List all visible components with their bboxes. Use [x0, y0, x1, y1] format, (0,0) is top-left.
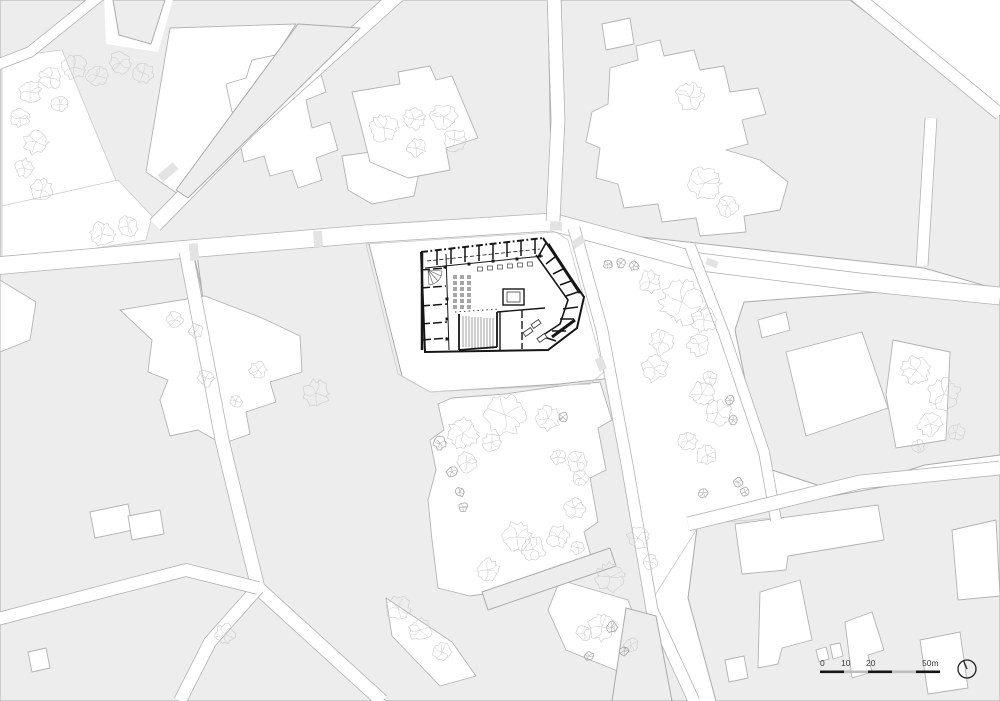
scale-label: 50m [922, 658, 939, 668]
plan-detail [467, 287, 471, 291]
plan-detail [467, 299, 471, 303]
plan-detail [453, 299, 457, 303]
street [553, 0, 558, 221]
courtyard [28, 648, 50, 672]
plan-detail [516, 258, 519, 261]
plan-detail [460, 281, 464, 285]
plan-detail [498, 265, 503, 269]
courtyard [886, 340, 950, 448]
plan-detail [460, 299, 464, 303]
plan-detail [453, 305, 457, 309]
tree-branches [642, 359, 666, 380]
courtyard [725, 656, 748, 682]
plan-detail [455, 309, 500, 312]
plan-detail [446, 318, 449, 321]
plan-detail [463, 316, 493, 349]
plan-detail [503, 289, 524, 305]
crosswalk [313, 231, 323, 248]
plan-detail [508, 264, 513, 268]
plan-detail [537, 334, 547, 343]
parcel-outline [366, 232, 604, 392]
plan-detail [523, 328, 533, 337]
courtyard [602, 18, 634, 50]
layer-building-plan [421, 238, 584, 352]
tree-branches [652, 331, 670, 353]
site-plan-svg: 0102050m [0, 0, 1000, 701]
plan-detail [460, 287, 464, 291]
plan-detail [428, 270, 442, 285]
plan-detail [478, 267, 483, 271]
plan-detail [467, 275, 471, 279]
plan-detail [518, 263, 523, 267]
scale-label: 0 [820, 658, 825, 668]
scale-label: 10 [841, 658, 851, 668]
tree-icon [642, 354, 669, 382]
scale-bar-segment [892, 671, 916, 674]
plan-detail [497, 308, 545, 350]
plan-detail [492, 260, 495, 263]
tree-branches [688, 338, 707, 354]
plan-detail [453, 275, 457, 279]
plan-detail [453, 281, 457, 285]
plan-detail [460, 275, 464, 279]
tree-branches [691, 383, 713, 401]
scale-bar-segment [868, 671, 892, 674]
plan-detail [460, 293, 464, 297]
tree-icon [686, 335, 709, 357]
tree-branches [726, 397, 734, 404]
plan-detail [446, 338, 449, 341]
scale-label: 20 [866, 658, 876, 668]
courtyard [952, 520, 1000, 600]
plan-detail [467, 281, 471, 285]
crosswalk [550, 221, 562, 231]
plan-detail [488, 266, 493, 270]
scale-bar-segment [820, 671, 844, 674]
plan-detail [528, 262, 533, 266]
plan-detail [444, 266, 447, 269]
plan-detail [427, 249, 540, 261]
plan-detail [437, 239, 535, 265]
crosswalk [189, 243, 199, 261]
scale-bar-segment [844, 671, 868, 674]
plan-detail [425, 256, 543, 268]
plan-detail [468, 263, 471, 266]
plan-detail [453, 293, 457, 297]
plan-detail [539, 255, 542, 258]
plan-detail [446, 298, 449, 301]
plan-detail [467, 305, 471, 309]
scale-bar-segment [916, 671, 940, 674]
plan-detail [552, 320, 575, 337]
tree-branches [665, 283, 701, 318]
site-plan: 0102050m [0, 0, 1000, 701]
plan-detail [531, 320, 541, 329]
plan-detail [460, 305, 464, 309]
tree-icon [697, 445, 716, 465]
plan-detail [453, 287, 457, 291]
plan-detail [421, 238, 543, 252]
plan-detail [467, 293, 471, 297]
tree-branches [680, 433, 695, 448]
